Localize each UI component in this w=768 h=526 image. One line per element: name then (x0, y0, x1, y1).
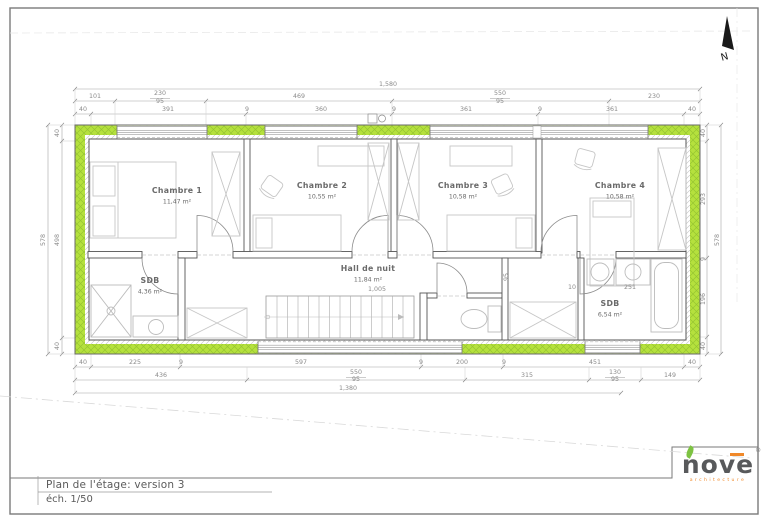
drawing-title: Plan de l'étage: version 3 (46, 479, 185, 491)
svg-text:149: 149 (664, 372, 676, 379)
svg-text:1,380: 1,380 (339, 385, 357, 392)
svg-text:10,58 m²: 10,58 m² (449, 194, 478, 201)
svg-text:196: 196 (700, 293, 707, 305)
svg-text:Hall de nuit: Hall de nuit (341, 264, 396, 273)
svg-text:40: 40 (688, 106, 696, 113)
svg-text:361: 361 (606, 106, 618, 113)
svg-text:9: 9 (392, 106, 396, 113)
svg-text:11,47 m²: 11,47 m² (163, 199, 192, 206)
svg-text:361: 361 (460, 106, 472, 113)
svg-text:251: 251 (624, 284, 636, 291)
svg-text:225: 225 (129, 359, 141, 366)
svg-text:40: 40 (54, 342, 61, 350)
svg-text:293: 293 (700, 193, 707, 205)
svg-text:436: 436 (155, 372, 167, 379)
drawing-sheet: 1,58010123095469550952304039193609361936… (0, 0, 768, 526)
svg-text:578: 578 (40, 234, 47, 246)
svg-text:SDB: SDB (141, 276, 160, 285)
svg-text:40: 40 (688, 359, 696, 366)
svg-text:9: 9 (700, 257, 707, 261)
svg-text:Chambre 1: Chambre 1 (152, 186, 202, 195)
svg-text:9: 9 (419, 359, 423, 366)
north-arrow-icon (722, 16, 734, 50)
svg-text:10,55 m²: 10,55 m² (308, 194, 337, 201)
svg-text:Chambre 3: Chambre 3 (438, 181, 488, 190)
svg-text:597: 597 (295, 359, 307, 366)
svg-text:498: 498 (54, 234, 61, 246)
svg-text:130: 130 (609, 369, 621, 376)
svg-text:40: 40 (79, 106, 87, 113)
svg-text:550: 550 (494, 90, 506, 97)
logo-accent-bar (730, 453, 744, 456)
svg-text:200: 200 (456, 359, 468, 366)
svg-text:230: 230 (154, 90, 166, 97)
svg-text:101: 101 (89, 93, 101, 100)
svg-text:1,580: 1,580 (379, 81, 397, 88)
svg-text:SDB: SDB (601, 299, 620, 308)
chimney-vent (368, 114, 386, 123)
svg-text:Chambre 4: Chambre 4 (595, 181, 645, 190)
svg-text:360: 360 (315, 106, 327, 113)
svg-text:95: 95 (611, 376, 619, 383)
svg-text:451: 451 (589, 359, 601, 366)
svg-text:469: 469 (293, 93, 305, 100)
svg-text:95: 95 (503, 273, 510, 281)
svg-text:40: 40 (79, 359, 87, 366)
svg-text:10: 10 (568, 284, 576, 291)
svg-text:4,36 m²: 4,36 m² (138, 289, 163, 296)
svg-text:9: 9 (179, 359, 183, 366)
svg-text:40: 40 (700, 342, 707, 350)
svg-text:11,84 m²: 11,84 m² (354, 277, 383, 284)
exterior-wall-insulation (75, 125, 700, 354)
svg-text:6,54 m²: 6,54 m² (598, 312, 623, 319)
registered-mark: ® (755, 448, 762, 454)
svg-text:95: 95 (496, 98, 504, 105)
svg-text:391: 391 (162, 106, 174, 113)
floor-plan-svg: 1,58010123095469550952304039193609361936… (0, 0, 768, 526)
svg-text:Chambre 2: Chambre 2 (297, 181, 347, 190)
svg-text:578: 578 (714, 234, 721, 246)
svg-text:230: 230 (648, 93, 660, 100)
svg-text:40: 40 (700, 129, 707, 137)
svg-text:9: 9 (245, 106, 249, 113)
svg-text:95: 95 (156, 98, 164, 105)
title-block: Plan de l'étage: version 3 éch. 1/50 (46, 479, 185, 506)
svg-text:95: 95 (352, 376, 360, 383)
drawing-scale: éch. 1/50 (46, 494, 185, 506)
svg-text:9: 9 (538, 106, 542, 113)
architect-logo: nove ® architecture (681, 452, 755, 483)
svg-text:315: 315 (521, 372, 533, 379)
svg-text:40: 40 (54, 129, 61, 137)
svg-text:10,58 m²: 10,58 m² (606, 194, 635, 201)
svg-text:9: 9 (502, 359, 506, 366)
svg-text:1,005: 1,005 (368, 286, 386, 293)
svg-text:550: 550 (350, 369, 362, 376)
window-mullion (533, 126, 541, 138)
